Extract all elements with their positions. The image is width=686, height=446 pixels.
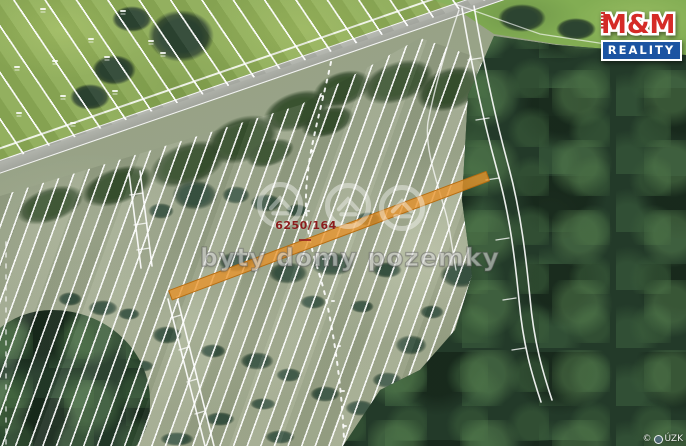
attribution-agency: ÚZK	[665, 434, 684, 444]
watermark-house-icon	[379, 185, 425, 231]
forest-edge-boundary	[427, 10, 459, 270]
mm-reality-logo: M&M M&M REALITY	[601, 12, 682, 61]
field-corridor-line	[168, 299, 205, 446]
parcel-number-label: 6250/164	[258, 219, 354, 232]
watermark-text: byty domy pozemky	[200, 243, 496, 272]
logo-subtitle: REALITY	[601, 40, 682, 61]
forest-corridor-line	[462, 8, 541, 402]
cadastral-map: byty domy pozemky 6250/164 M&M M&M REALI…	[0, 0, 686, 446]
logo-title-text: M&M	[601, 12, 673, 39]
copyright-symbol: ©	[643, 434, 652, 444]
short-corridor-line	[129, 173, 141, 268]
cuzk-emblem-icon	[654, 435, 663, 444]
logo-title: M&M M&M	[601, 12, 682, 39]
field-corridor-line	[177, 297, 214, 446]
logo-vertical-microtext	[601, 12, 605, 30]
forest-corridor-line	[474, 6, 552, 400]
parcel-number-sub-mark	[299, 239, 311, 241]
short-corridor-line	[140, 171, 152, 266]
map-attribution: © ÚZK	[643, 434, 684, 444]
